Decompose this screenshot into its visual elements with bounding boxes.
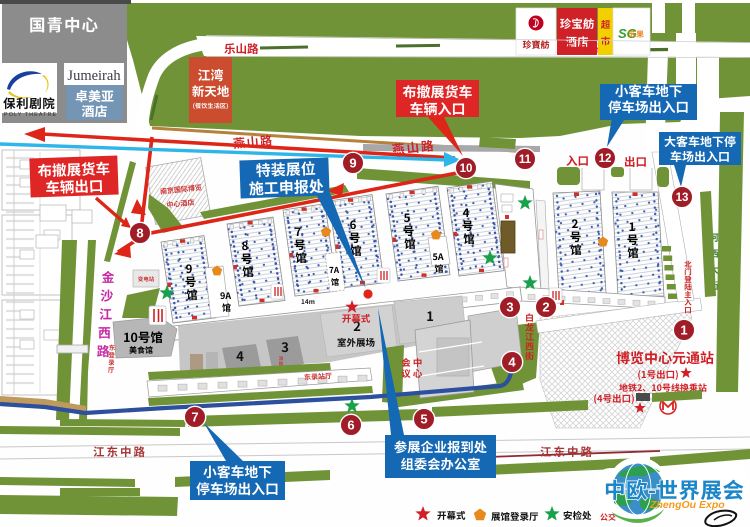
svg-text:10: 10 [460, 163, 473, 175]
svg-text:11: 11 [519, 154, 532, 166]
svg-text:5: 5 [420, 412, 427, 427]
svg-text:ZhengOu Expo: ZhengOu Expo [649, 499, 725, 511]
svg-text:9: 9 [349, 156, 356, 171]
svg-text:4: 4 [508, 355, 516, 370]
svg-text:POLY THEATRE: POLY THEATRE [4, 112, 57, 118]
svg-text:8: 8 [136, 226, 143, 241]
svg-text:12: 12 [599, 153, 612, 165]
svg-text:6: 6 [347, 418, 354, 433]
svg-text:2: 2 [542, 300, 549, 315]
svg-text:7: 7 [191, 410, 198, 425]
svg-text:1: 1 [680, 323, 687, 338]
svg-text:13: 13 [676, 192, 689, 204]
svg-text:3: 3 [506, 300, 513, 315]
svg-text:Jumeirah: Jumeirah [67, 68, 121, 84]
